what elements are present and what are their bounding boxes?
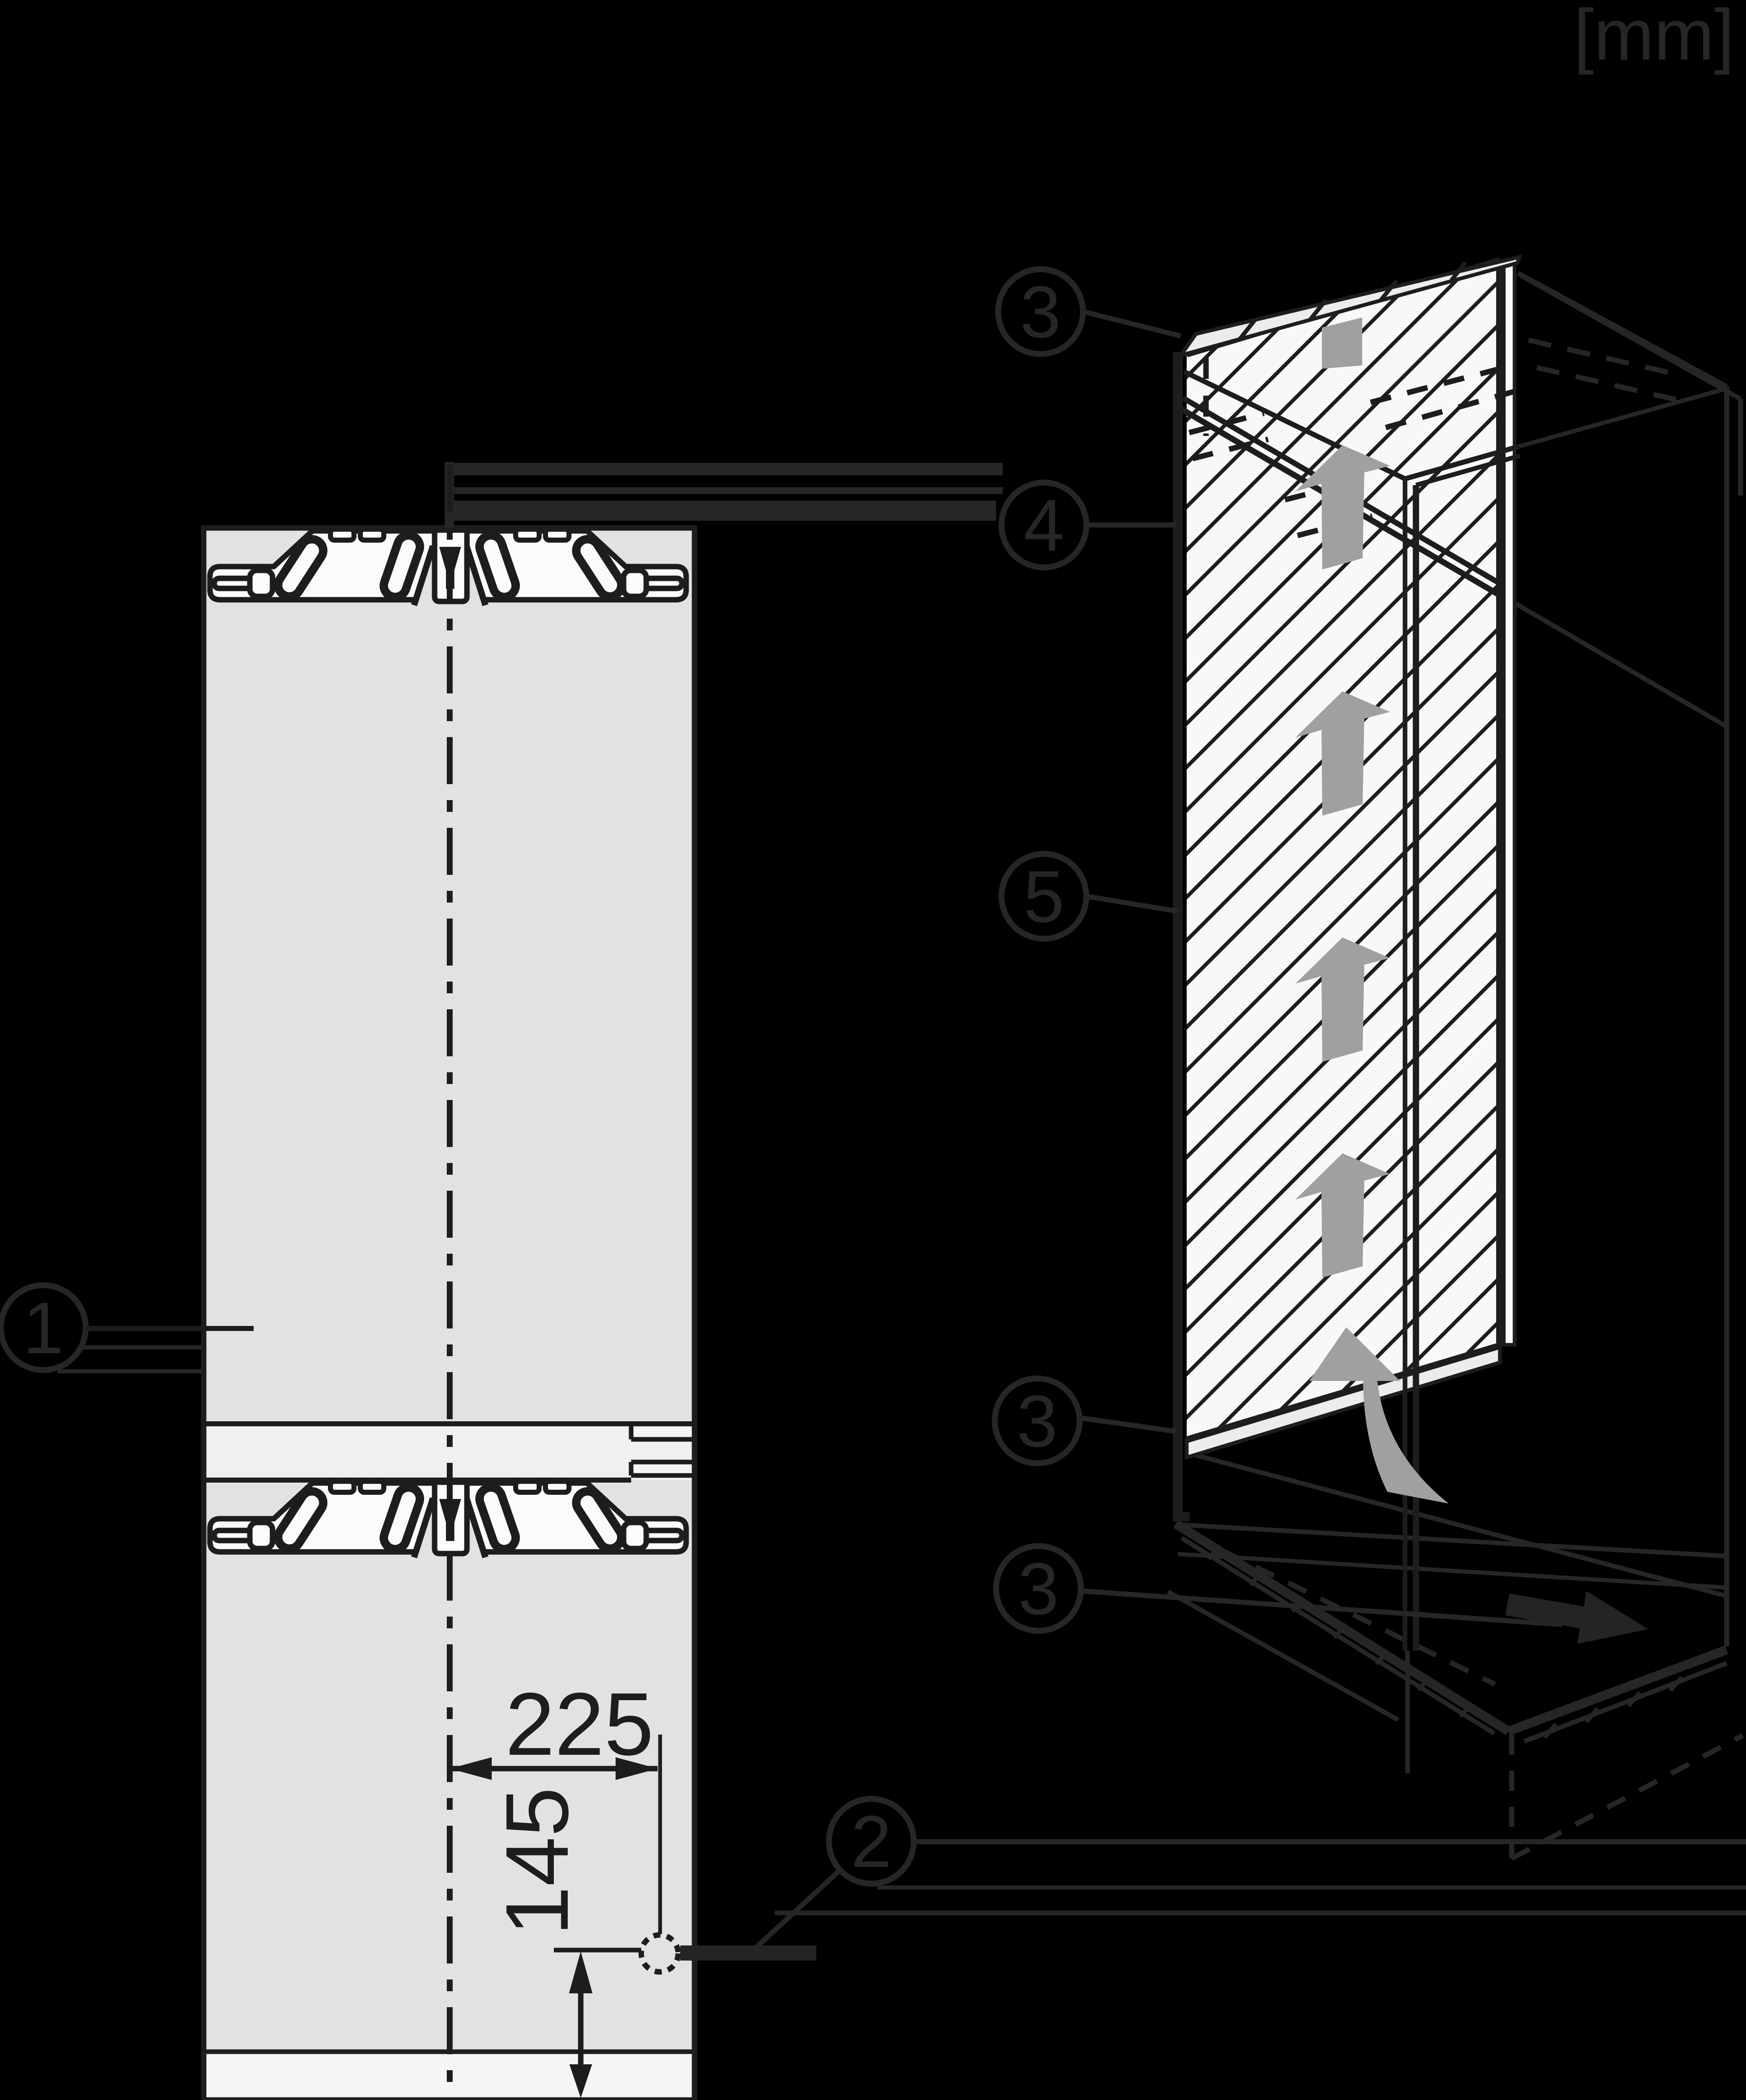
svg-text:3: 3 [1018,1548,1059,1630]
svg-text:145: 145 [487,1787,587,1936]
svg-text:225: 225 [505,1674,654,1774]
svg-text:4: 4 [1023,485,1064,567]
svg-text:3: 3 [1020,271,1061,353]
svg-text:1: 1 [23,1287,63,1369]
svg-text:5: 5 [1023,856,1064,938]
svg-text:[mm]: [mm] [1574,0,1734,75]
svg-text:2: 2 [851,1801,891,1883]
svg-text:3: 3 [1017,1381,1057,1462]
